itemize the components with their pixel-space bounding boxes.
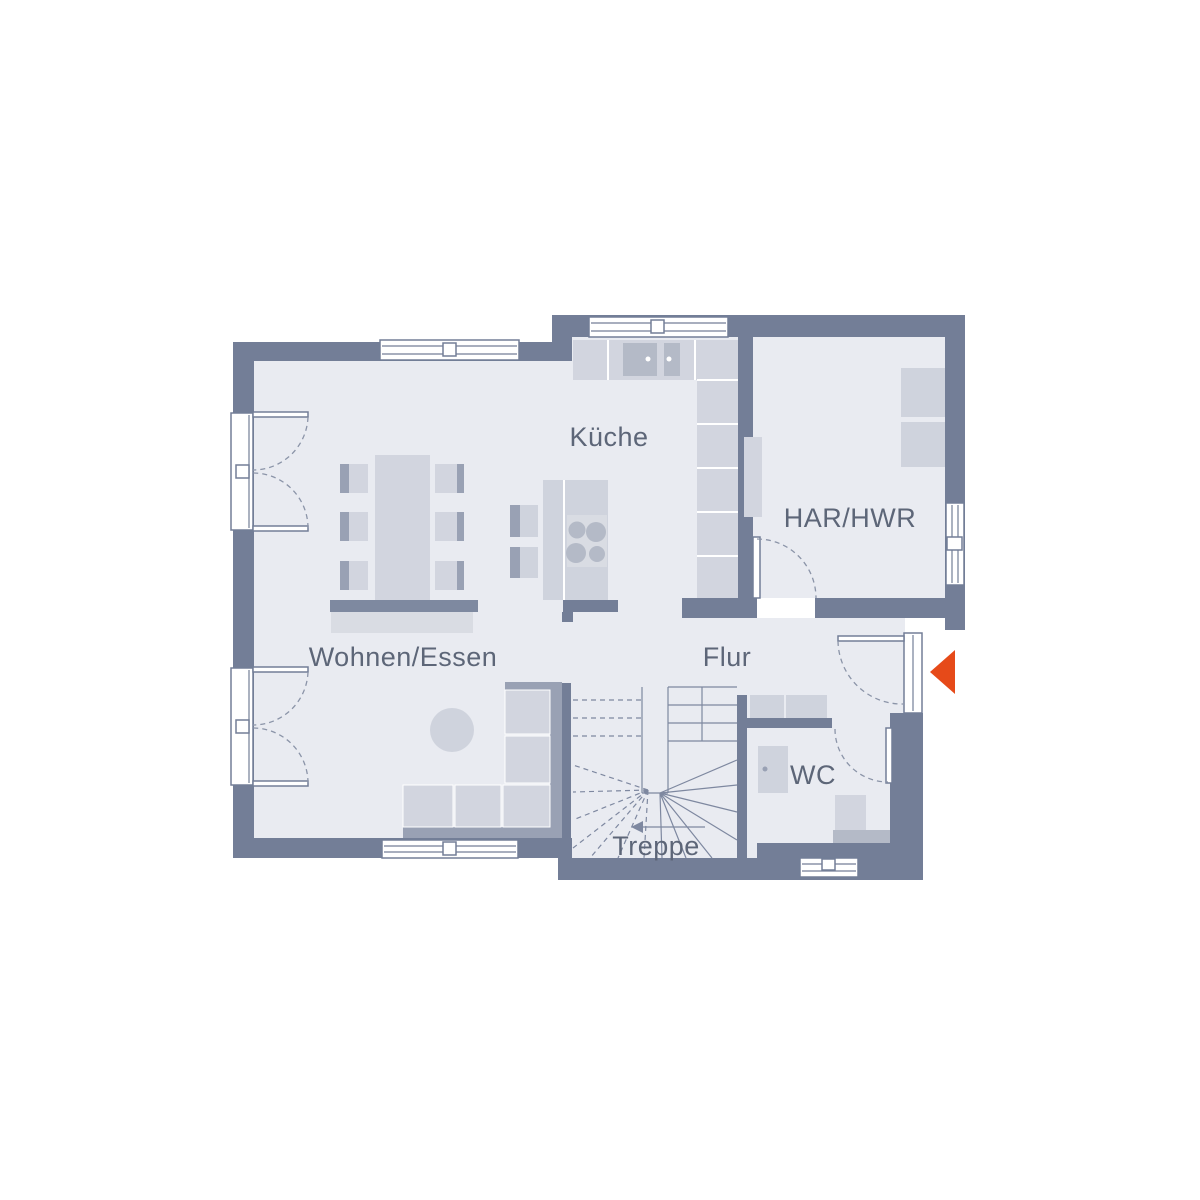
floor-plan-page: Küche HAR/HWR Wohnen/Essen Flur WC Trepp…	[0, 0, 1200, 1200]
wall-island-stub	[562, 612, 573, 622]
har-appliance-2	[901, 422, 945, 467]
wall-niche	[744, 437, 762, 517]
label-kueche: Küche	[569, 422, 648, 452]
label-har: HAR/HWR	[784, 503, 917, 533]
label-wohnen: Wohnen/Essen	[309, 642, 498, 672]
window-top-living	[380, 340, 519, 360]
wall-bottom-block	[558, 858, 923, 880]
wall-island-cap	[563, 600, 618, 612]
dining-chairs-right	[435, 464, 464, 590]
hall-furniture	[750, 695, 827, 718]
window-wc	[800, 858, 858, 877]
window-kitchen	[589, 317, 728, 337]
wc-cistern	[833, 830, 890, 843]
window-bottom-living	[382, 840, 518, 858]
entrance-arrow-icon	[930, 650, 955, 694]
dining-table	[375, 455, 430, 600]
label-treppe: Treppe	[612, 831, 700, 861]
dining-chairs-left	[340, 464, 368, 590]
har-appliance-1	[901, 368, 945, 417]
sideboard	[331, 612, 473, 633]
wall-wc-bottom	[757, 843, 890, 858]
cabinet-handle	[667, 357, 672, 362]
wc-toilet	[835, 795, 866, 830]
coffee-table	[430, 708, 474, 752]
hall-cabinet-2	[786, 695, 827, 718]
sideboard-top	[330, 600, 478, 612]
floor-plan-drawing: Küche HAR/HWR Wohnen/Essen Flur WC Trepp…	[0, 0, 1200, 1200]
window-har-right	[946, 503, 964, 585]
har-door-opening	[757, 598, 815, 618]
wall-wc-top	[737, 718, 832, 728]
sofa-back-bottom	[403, 827, 550, 838]
label-wc: WC	[790, 760, 836, 790]
sofa-back-right	[550, 690, 562, 838]
wc-washbasin	[758, 746, 788, 793]
hall-cabinet-1	[750, 695, 784, 718]
cabinet-handle	[646, 357, 651, 362]
kitchen-appliance	[664, 343, 680, 376]
kitchen-sink-unit	[623, 343, 657, 376]
wall-stair-right	[737, 695, 747, 860]
wall-flur-right	[890, 713, 923, 858]
sofa-back-cap	[505, 682, 562, 690]
label-flur: Flur	[703, 642, 752, 672]
washbasin-drain	[763, 767, 768, 772]
wall-kitchen-stub	[682, 598, 757, 618]
